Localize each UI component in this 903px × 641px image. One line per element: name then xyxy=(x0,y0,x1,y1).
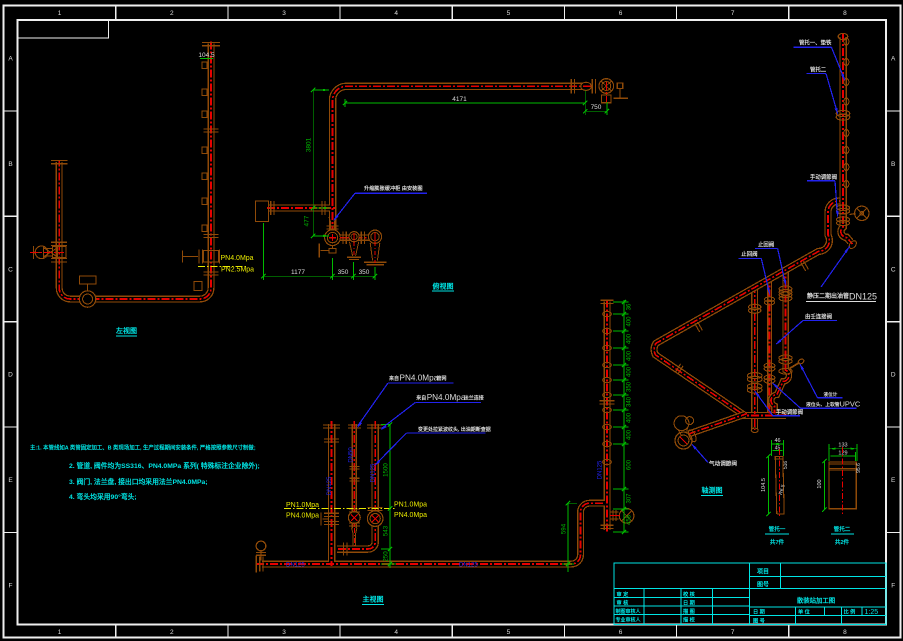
svg-text:PN2.5Mpa: PN2.5Mpa xyxy=(221,267,254,274)
svg-text:8: 8 xyxy=(843,10,847,17)
svg-text:B: B xyxy=(891,161,895,168)
svg-text:升缩膨胀缓冲柜 由安装图: 升缩膨胀缓冲柜 由安装图 xyxy=(364,184,423,192)
svg-text:2: 2 xyxy=(170,629,174,636)
svg-text:400: 400 xyxy=(627,366,633,377)
svg-text:A: A xyxy=(891,56,896,63)
svg-text:340: 340 xyxy=(627,396,633,407)
svg-text:项目: 项目 xyxy=(757,568,769,576)
svg-text:458: 458 xyxy=(627,514,633,525)
svg-text:B: B xyxy=(8,161,12,168)
svg-text:7: 7 xyxy=(731,629,735,636)
svg-text:100: 100 xyxy=(817,479,823,488)
svg-text:专业审核人: 专业审核人 xyxy=(616,617,642,624)
svg-text:3801: 3801 xyxy=(306,137,313,152)
svg-text:DN125: DN125 xyxy=(371,463,377,482)
svg-text:PN4.0Mpa: PN4.0Mpa xyxy=(286,513,319,520)
svg-text:图 号: 图 号 xyxy=(753,616,765,624)
svg-text:止回阀: 止回阀 xyxy=(758,240,775,248)
svg-text:描 图: 描 图 xyxy=(683,607,695,615)
svg-text:来自: 来自 xyxy=(415,394,426,401)
svg-text:PN4.0Mpa: PN4.0Mpa xyxy=(427,393,466,402)
svg-text:8: 8 xyxy=(843,629,847,636)
svg-text:104.5: 104.5 xyxy=(198,52,215,59)
svg-text:400: 400 xyxy=(627,429,633,440)
svg-text:C: C xyxy=(891,266,896,273)
svg-text:主视图: 主视图 xyxy=(363,594,384,603)
svg-text:来自: 来自 xyxy=(388,375,399,382)
svg-text:图号: 图号 xyxy=(757,581,769,589)
svg-text:E: E xyxy=(8,477,13,484)
svg-text:5: 5 xyxy=(507,10,511,17)
svg-text:PN1.0Mpa: PN1.0Mpa xyxy=(286,502,319,509)
svg-text:3: 3 xyxy=(282,629,286,636)
svg-text:4171: 4171 xyxy=(452,96,467,103)
svg-text:1:25: 1:25 xyxy=(865,609,879,616)
svg-text:F: F xyxy=(9,583,13,590)
svg-text:350: 350 xyxy=(359,269,370,276)
svg-text:1: 1 xyxy=(58,10,62,17)
svg-text:D: D xyxy=(891,372,896,379)
svg-text:变更处拉紧波纹头, 出油期断查据: 变更处拉紧波纹头, 出油期断查据 xyxy=(418,426,491,433)
svg-text:共2件: 共2件 xyxy=(835,538,850,546)
svg-text:管托二: 管托二 xyxy=(810,65,827,73)
svg-text:95.6: 95.6 xyxy=(856,463,862,473)
svg-text:液位计: 液位计 xyxy=(824,391,838,398)
svg-text:静压二期出油管: 静压二期出油管 xyxy=(807,292,849,300)
svg-text:审 核: 审 核 xyxy=(617,598,630,606)
svg-text:比 例: 比 例 xyxy=(844,607,856,615)
svg-text:1: 1 xyxy=(58,629,62,636)
svg-text:F: F xyxy=(891,583,895,590)
svg-text:6: 6 xyxy=(619,10,623,17)
svg-text:E: E xyxy=(891,477,896,484)
svg-text:PN4.0Mpa: PN4.0Mpa xyxy=(400,373,439,382)
svg-text:543: 543 xyxy=(382,525,389,536)
svg-text:管托一: 管托一 xyxy=(769,525,786,533)
svg-text:516: 516 xyxy=(783,461,789,470)
svg-text:DN50: DN50 xyxy=(349,447,355,463)
svg-text:手动调節阀: 手动调節阀 xyxy=(776,408,804,416)
svg-text:单 位: 单 位 xyxy=(798,607,811,615)
svg-text:600: 600 xyxy=(627,459,633,470)
svg-text:400: 400 xyxy=(627,412,633,423)
svg-text:DN125: DN125 xyxy=(598,460,604,479)
svg-text:日 期: 日 期 xyxy=(753,607,765,615)
svg-text:7: 7 xyxy=(731,10,735,17)
svg-text:止回阀: 止回阀 xyxy=(741,250,758,258)
svg-text:3: 3 xyxy=(282,10,286,17)
svg-text:750: 750 xyxy=(591,104,602,111)
svg-text:5: 5 xyxy=(507,629,511,636)
svg-text:3. 阀门, 法兰盘, 接出口均采用法兰PN4.0MPa;: 3. 阀门, 法兰盘, 接出口均采用法兰PN4.0MPa; xyxy=(69,477,208,486)
svg-text:4: 4 xyxy=(394,10,398,17)
svg-text:DN125: DN125 xyxy=(327,476,333,495)
svg-text:法兰连接: 法兰连接 xyxy=(464,394,484,401)
svg-text:UPVC: UPVC xyxy=(840,399,861,408)
svg-text:制图审核人: 制图审核人 xyxy=(616,608,642,615)
svg-text:400: 400 xyxy=(627,350,633,361)
svg-text:手动调節阀: 手动调節阀 xyxy=(810,173,838,181)
svg-text:轴测图: 轴测图 xyxy=(702,485,723,494)
svg-text:350: 350 xyxy=(627,381,633,392)
svg-text:DN125: DN125 xyxy=(459,562,478,568)
svg-text:主:1. 本管线如A 类管固定加工、B 类现场加工, 生产过: 主:1. 本管线如A 类管固定加工、B 类现场加工, 生产过程期间安装条件, 严… xyxy=(30,444,256,452)
svg-text:2. 管道, 阀件均为SS316、PN4.0MPa 系列(: 2. 管道, 阀件均为SS316、PN4.0MPa 系列( 特殊标注企业除外); xyxy=(69,461,260,470)
svg-text:46: 46 xyxy=(774,438,780,444)
svg-text:由壬连接阀: 由壬连接阀 xyxy=(805,313,833,321)
svg-text:4: 4 xyxy=(394,629,398,636)
svg-text:104.5: 104.5 xyxy=(761,478,767,492)
svg-text:左视图: 左视图 xyxy=(115,326,137,335)
svg-text:6: 6 xyxy=(619,629,623,636)
svg-text:日 期: 日 期 xyxy=(683,598,695,606)
svg-text:气动调節阀: 气动调節阀 xyxy=(708,459,737,467)
svg-text:250: 250 xyxy=(382,551,389,562)
svg-text:350: 350 xyxy=(338,269,349,276)
svg-text:1177: 1177 xyxy=(291,269,305,276)
svg-text:共7件: 共7件 xyxy=(770,538,785,546)
svg-text:A: A xyxy=(8,56,13,63)
svg-text:PN4.0Mpa: PN4.0Mpa xyxy=(394,512,427,519)
svg-text:描 校: 描 校 xyxy=(683,616,696,624)
svg-text:594: 594 xyxy=(560,523,567,534)
svg-text:散装站加工图: 散装站加工图 xyxy=(797,596,835,605)
svg-text:液位头、上软管: 液位头、上软管 xyxy=(806,401,840,408)
svg-text:管网: 管网 xyxy=(437,375,447,382)
svg-text:审 定: 审 定 xyxy=(617,590,630,598)
svg-text:36: 36 xyxy=(627,303,633,310)
svg-text:DN125: DN125 xyxy=(286,562,305,568)
svg-text:管托二: 管托二 xyxy=(834,525,851,533)
svg-text:307: 307 xyxy=(627,493,633,504)
svg-text:4. 弯头均采用90°弯头;: 4. 弯头均采用90°弯头; xyxy=(69,492,137,501)
svg-text:俯视图: 俯视图 xyxy=(433,281,454,290)
svg-text:400: 400 xyxy=(627,333,633,344)
svg-text:管托一、垫铁: 管托一、垫铁 xyxy=(799,38,832,46)
svg-text:477: 477 xyxy=(304,215,311,226)
svg-text:C: C xyxy=(8,266,13,273)
svg-text:2: 2 xyxy=(170,10,174,17)
svg-text:PN4.0Mpa: PN4.0Mpa xyxy=(221,255,254,262)
svg-text:DN125: DN125 xyxy=(849,292,877,302)
svg-text:400: 400 xyxy=(627,316,633,327)
svg-text:校 核: 校 核 xyxy=(683,590,696,598)
svg-text:1500: 1500 xyxy=(382,463,389,477)
svg-text:D: D xyxy=(8,372,13,379)
svg-text:PN1.0Mpa: PN1.0Mpa xyxy=(394,501,427,508)
